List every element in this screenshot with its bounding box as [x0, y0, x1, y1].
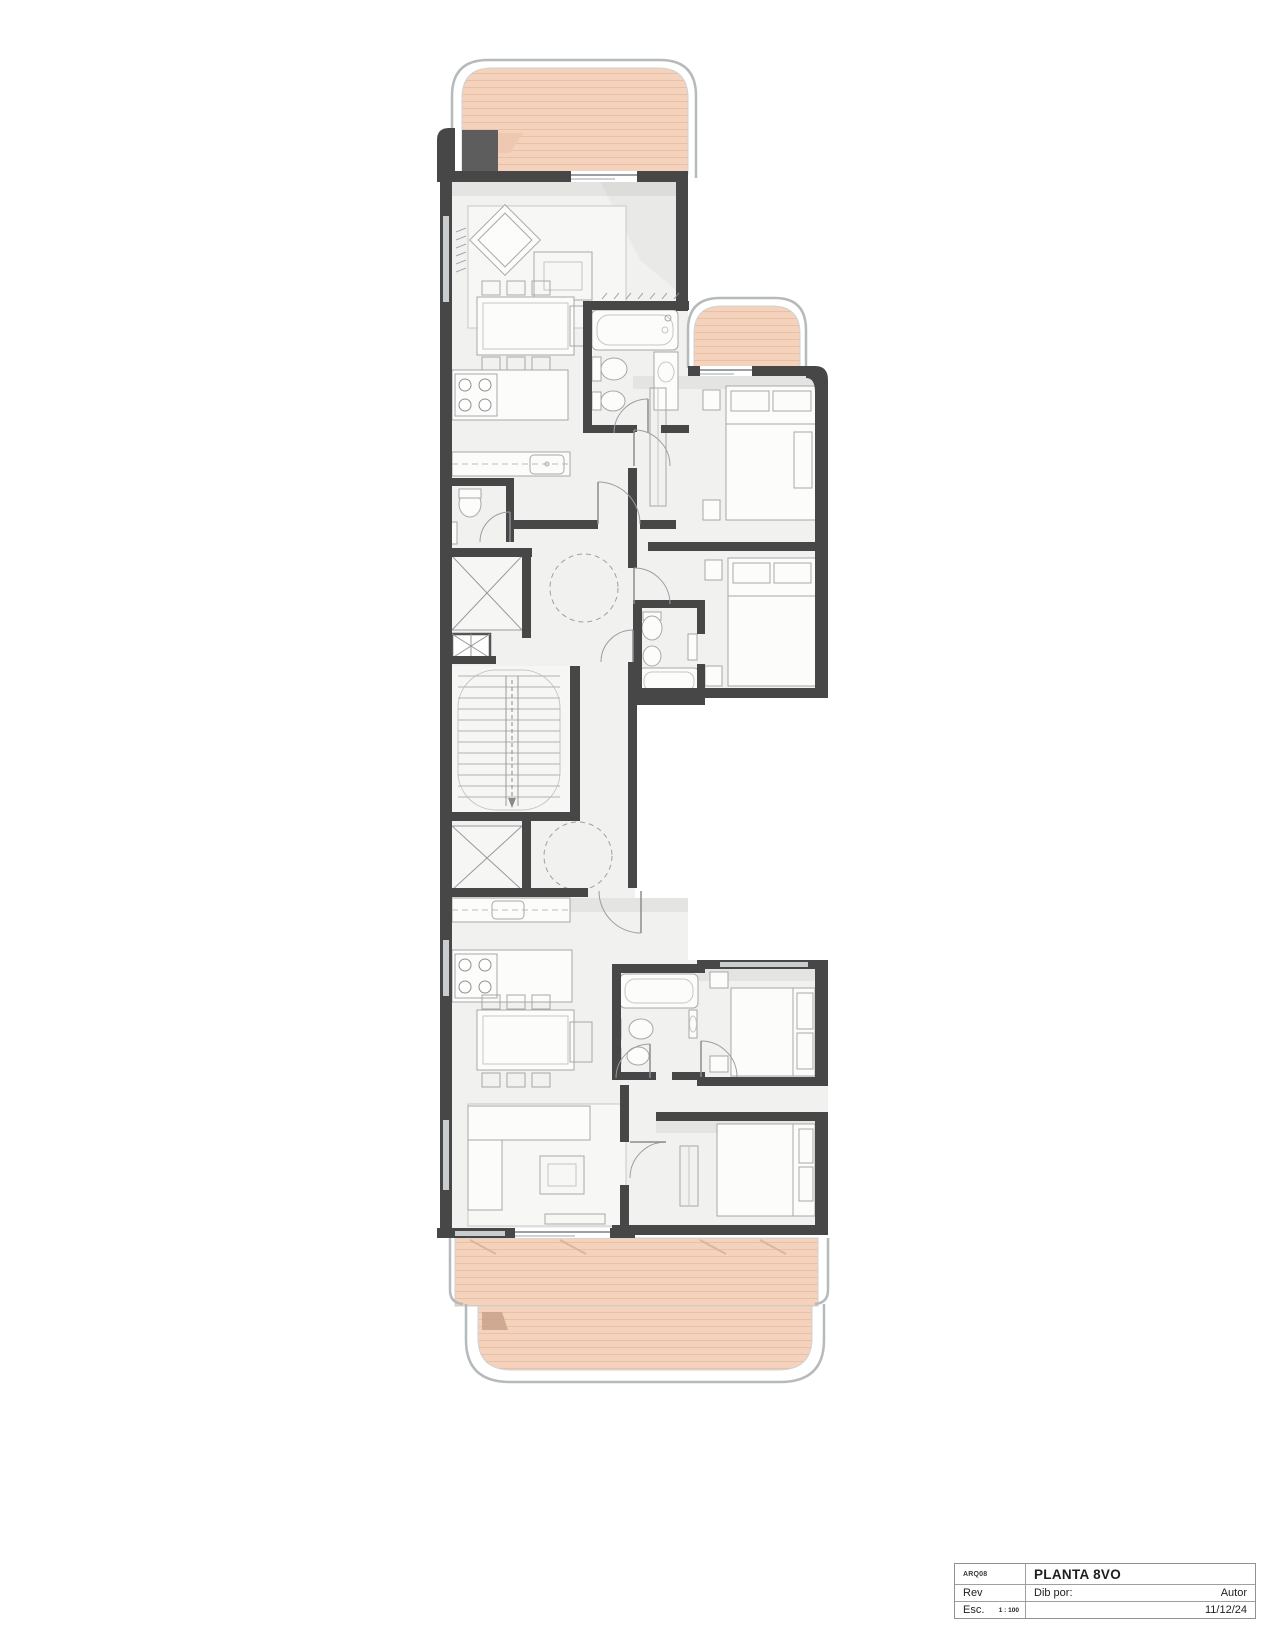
- core-elevator-shaft: [452, 556, 522, 630]
- scale-value: 1 : 100: [999, 1607, 1019, 1614]
- balcony-right: [688, 298, 806, 368]
- date-cell: 11/12/24: [1026, 1602, 1255, 1618]
- drawn-by-label: Dib por:: [1034, 1587, 1073, 1599]
- core-duct: [452, 634, 490, 658]
- balcony-bottom: [450, 1238, 828, 1382]
- sheet-code: ARQ08: [963, 1571, 987, 1578]
- drawing-sheet: ARQ08 PLANTA 8VO Rev Dib por: Autor Esc.…: [0, 0, 1280, 1636]
- title-block-row-1: ARQ08 PLANTA 8VO: [955, 1564, 1255, 1585]
- title-block-row-3: Esc. 1 : 100 11/12/24: [955, 1602, 1255, 1618]
- unit-b-kitchen: [452, 898, 572, 1002]
- sheet-title-cell: PLANTA 8VO: [1026, 1564, 1255, 1584]
- unit-b-living: [468, 1104, 626, 1226]
- rev-cell: Rev: [955, 1585, 1026, 1601]
- drawn-by-cell: Dib por: Autor: [1026, 1585, 1255, 1601]
- date-value: 11/12/24: [1205, 1604, 1247, 1616]
- title-block: ARQ08 PLANTA 8VO Rev Dib por: Autor Esc.…: [954, 1563, 1256, 1619]
- floor-plan: [0, 0, 1280, 1636]
- sheet-title: PLANTA 8VO: [1034, 1567, 1121, 1582]
- core-shaft-2: [452, 826, 522, 890]
- title-block-row-2: Rev Dib por: Autor: [955, 1585, 1255, 1602]
- rev-label: Rev: [963, 1587, 983, 1599]
- scale-label: Esc.: [963, 1604, 984, 1616]
- author-value: Autor: [1221, 1587, 1247, 1599]
- sheet-code-cell: ARQ08: [955, 1564, 1026, 1584]
- core-stairwell: [452, 666, 570, 812]
- scale-cell: Esc. 1 : 100: [955, 1602, 1026, 1618]
